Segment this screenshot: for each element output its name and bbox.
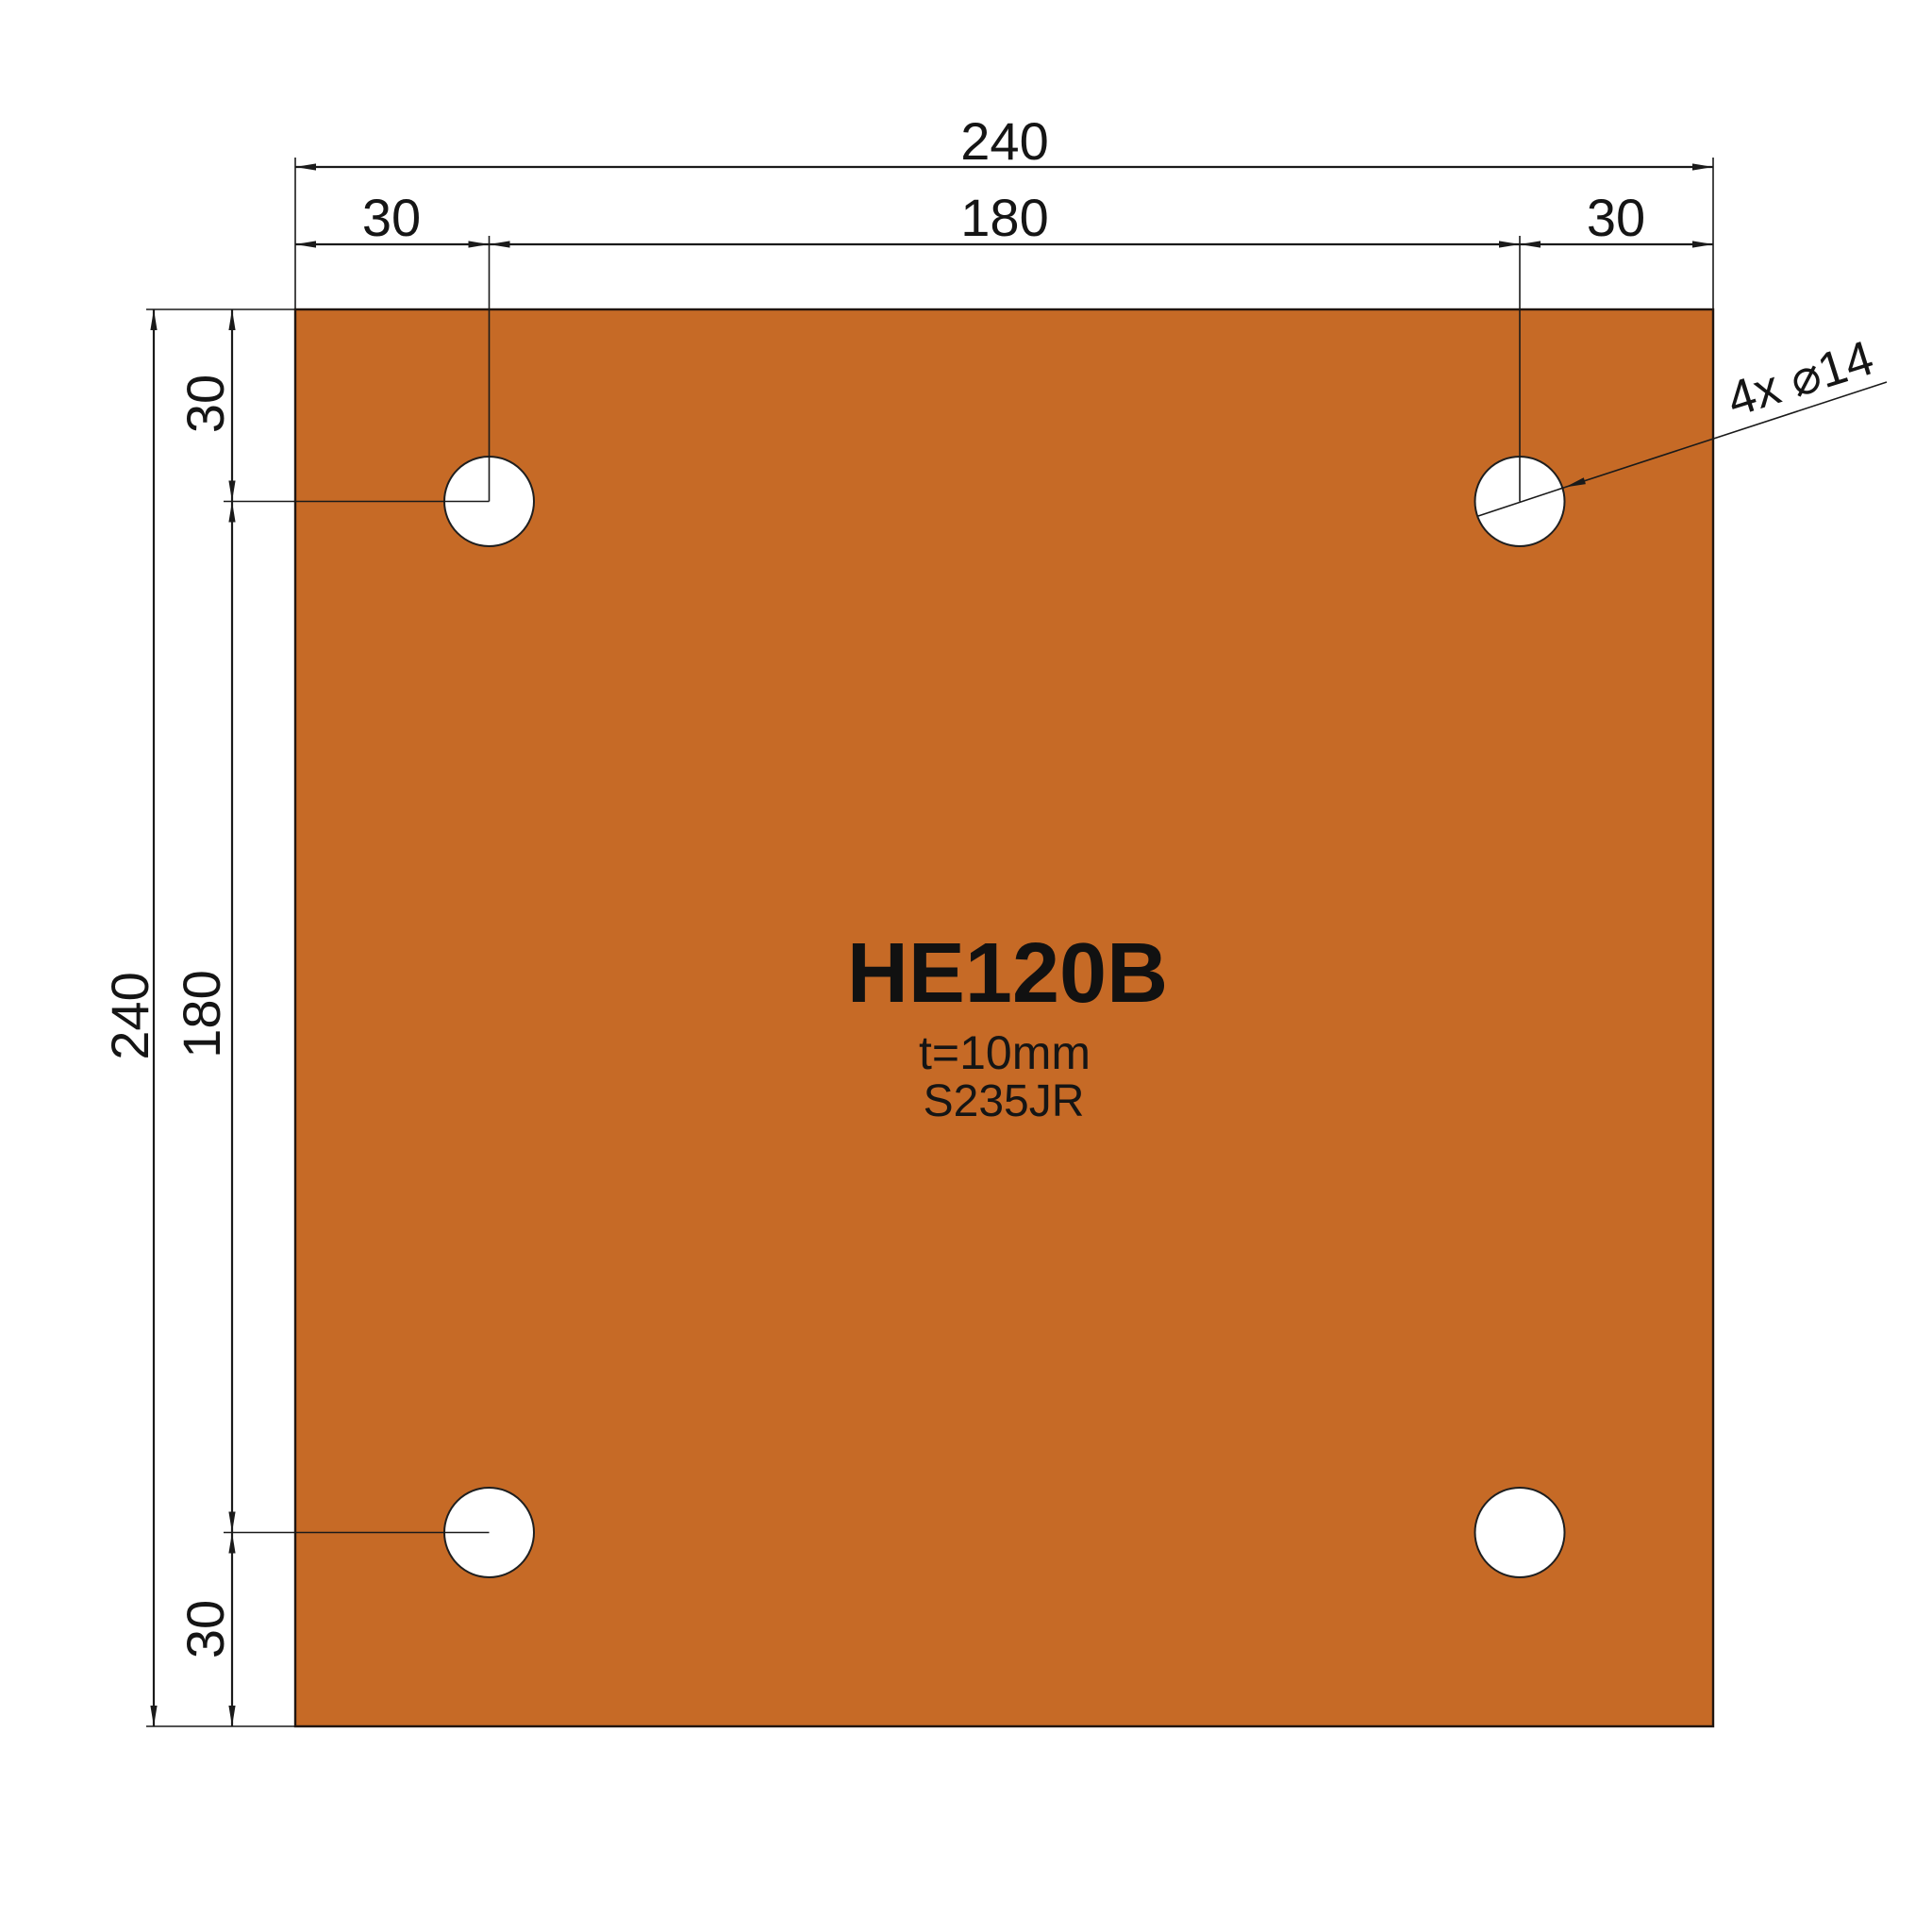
- dim-text-left-bottom-edge: 30: [175, 1600, 235, 1658]
- hole-bottom-right: [1475, 1488, 1565, 1577]
- dim-text-top-right-edge: 30: [1587, 188, 1645, 247]
- part-name-label: HE120B: [847, 926, 1168, 1021]
- dim-text-top-left-edge: 30: [362, 188, 421, 247]
- dim-text-left-overall: 240: [100, 972, 159, 1059]
- drawing-page: 4x ⌀14 240 30 180 30 240 30 180 30 HE120…: [0, 0, 1932, 1932]
- drawing-canvas: 4x ⌀14 240 30 180 30 240 30 180 30 HE120…: [0, 0, 1932, 1932]
- part-material-label: S235JR: [924, 1076, 1085, 1126]
- dim-text-left-spacing: 180: [172, 970, 231, 1058]
- dim-text-top-overall: 240: [960, 111, 1048, 171]
- hole-callout-label: 4x ⌀14: [1721, 330, 1880, 427]
- dim-text-top-spacing: 180: [960, 188, 1048, 247]
- dim-text-left-top-edge: 30: [175, 375, 235, 433]
- hole-callout: 4x ⌀14: [1721, 330, 1880, 427]
- part-thickness-label: t=10mm: [919, 1026, 1091, 1079]
